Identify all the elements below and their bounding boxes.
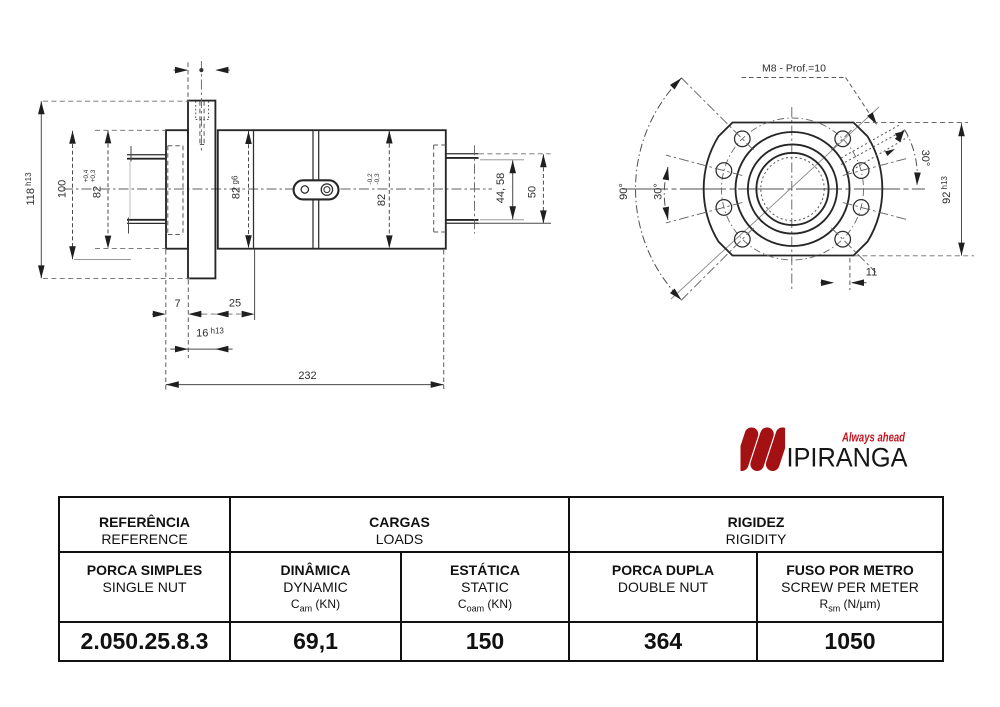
svg-text:90°: 90° (618, 183, 630, 200)
svg-text:+0,4: +0,4 (83, 169, 90, 182)
svg-text:82: 82 (231, 187, 243, 199)
svg-text:44, 58: 44, 58 (495, 173, 507, 204)
svg-text:7: 7 (174, 298, 180, 310)
svg-text:g6: g6 (231, 175, 240, 184)
svg-text:IPIRANGA: IPIRANGA (787, 443, 908, 473)
svg-text:30°: 30° (919, 150, 931, 167)
svg-text:16 h13: 16 h13 (196, 327, 224, 340)
svg-text:-0,3: -0,3 (374, 173, 381, 185)
svg-text:-0,2: -0,2 (367, 173, 374, 185)
svg-text:82: 82 (376, 194, 388, 206)
svg-text:50: 50 (527, 186, 539, 198)
svg-text:232: 232 (298, 370, 316, 382)
svg-text:118 h13: 118 h13 (24, 172, 37, 206)
svg-text:11: 11 (866, 267, 877, 279)
svg-text:82: 82 (92, 186, 104, 198)
svg-text:M8 - Prof.=10: M8 - Prof.=10 (762, 63, 826, 75)
svg-text:25: 25 (229, 298, 241, 310)
svg-text:+0,3: +0,3 (90, 169, 97, 182)
svg-text:92 h13: 92 h13 (940, 176, 953, 204)
svg-text:30°: 30° (653, 183, 665, 200)
svg-text:100: 100 (57, 180, 69, 198)
